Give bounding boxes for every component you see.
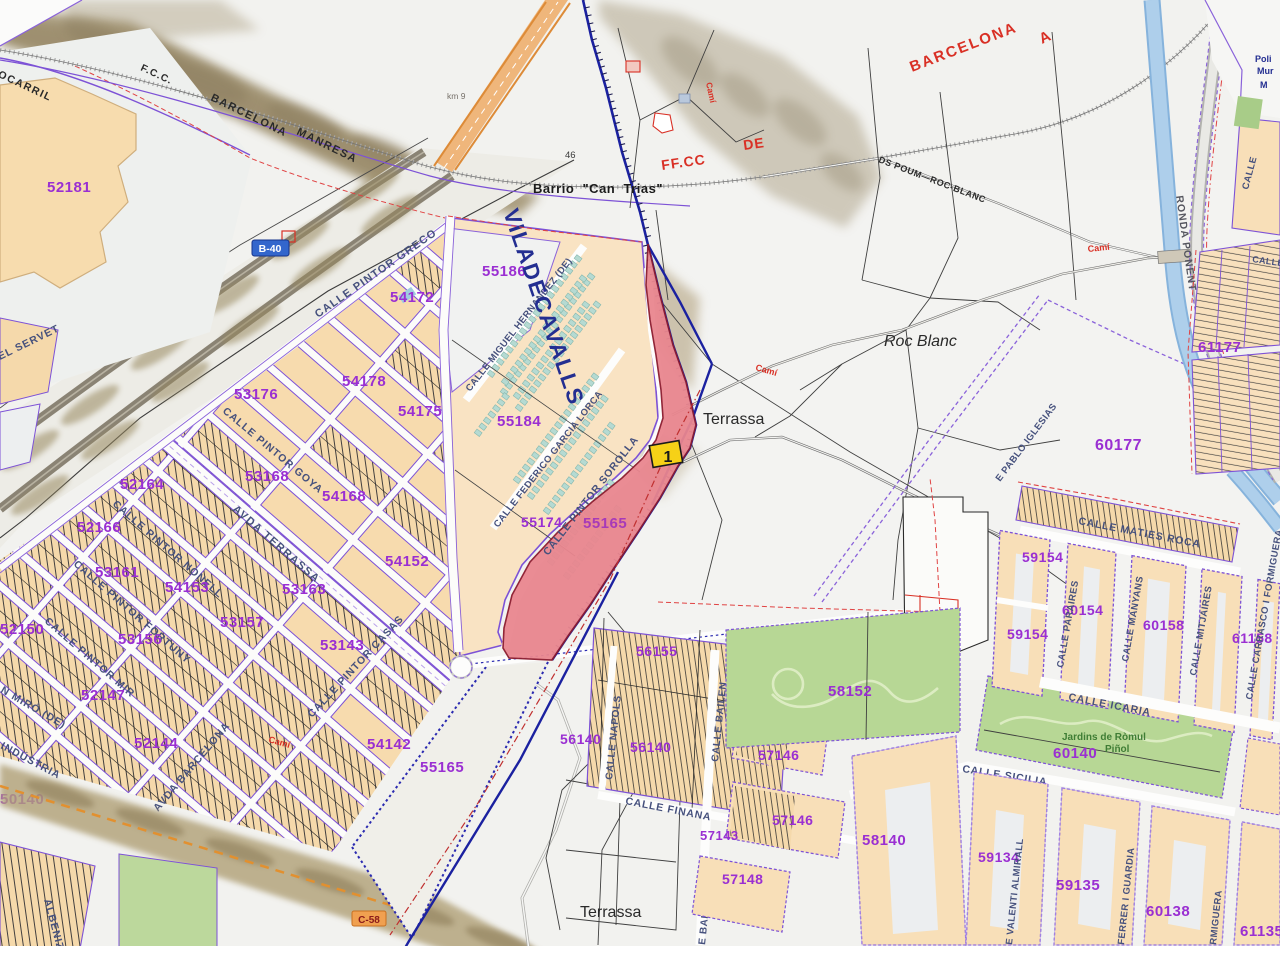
svg-text:53143: 53143: [320, 637, 364, 654]
svg-text:56140: 56140: [630, 739, 671, 755]
svg-text:Roc Blanc: Roc Blanc: [884, 333, 957, 350]
svg-text:56140: 56140: [560, 731, 601, 747]
svg-text:Mur: Mur: [1257, 66, 1274, 76]
svg-text:57143: 57143: [700, 828, 739, 843]
svg-text:54152: 54152: [385, 553, 429, 570]
svg-text:DE: DE: [742, 134, 765, 153]
svg-text:Poli: Poli: [1255, 54, 1272, 64]
svg-text:61177: 61177: [1198, 339, 1241, 356]
svg-text:52166: 52166: [77, 519, 121, 536]
svg-text:60140: 60140: [1053, 745, 1097, 762]
svg-text:60138: 60138: [1146, 903, 1190, 920]
svg-text:55174: 55174: [521, 514, 562, 530]
svg-text:53157: 53157: [220, 614, 264, 631]
svg-text:61135: 61135: [1240, 923, 1280, 940]
svg-text:58152: 58152: [828, 683, 872, 700]
svg-text:58140: 58140: [862, 832, 906, 849]
svg-text:1: 1: [664, 449, 673, 466]
svg-text:59154: 59154: [1022, 549, 1063, 565]
svg-text:57146: 57146: [758, 747, 799, 763]
svg-text:60177: 60177: [1095, 437, 1142, 454]
svg-text:52164: 52164: [120, 476, 164, 493]
svg-text:59135: 59135: [1056, 877, 1100, 894]
svg-text:54153: 54153: [165, 579, 209, 596]
svg-text:54178: 54178: [342, 373, 386, 390]
svg-text:52181: 52181: [47, 179, 91, 196]
svg-text:55184: 55184: [497, 413, 541, 430]
svg-text:B-40: B-40: [259, 243, 282, 255]
svg-text:Jardins de Ròmul: Jardins de Ròmul: [1062, 732, 1146, 743]
svg-text:54142: 54142: [367, 736, 411, 753]
svg-text:M: M: [1260, 80, 1268, 90]
svg-text:59154: 59154: [1007, 626, 1048, 642]
svg-text:60158: 60158: [1143, 617, 1184, 633]
svg-text:52147: 52147: [81, 687, 125, 704]
svg-text:53168: 53168: [245, 468, 289, 485]
svg-text:54172: 54172: [390, 289, 434, 306]
svg-text:57148: 57148: [722, 871, 763, 887]
svg-text:Terrassa: Terrassa: [580, 904, 641, 921]
svg-text:52150: 52150: [0, 621, 44, 638]
svg-text:Piñol: Piñol: [1105, 744, 1130, 755]
svg-text:53176: 53176: [234, 386, 278, 403]
svg-text:Terrassa: Terrassa: [703, 411, 764, 428]
svg-text:C-58: C-58: [358, 915, 380, 926]
svg-text:55165: 55165: [420, 759, 464, 776]
svg-text:52144: 52144: [134, 735, 178, 752]
svg-text:46: 46: [565, 150, 576, 161]
svg-text:55165: 55165: [583, 515, 627, 532]
svg-text:53161: 53161: [95, 564, 139, 581]
svg-text:km 9: km 9: [447, 91, 466, 101]
svg-text:54175: 54175: [398, 403, 442, 420]
svg-text:57146: 57146: [772, 812, 813, 828]
svg-text:54168: 54168: [322, 488, 366, 505]
svg-text:53156: 53156: [118, 631, 162, 648]
svg-text:56155: 56155: [636, 643, 677, 659]
svg-text:Barrio "Can Trias": Barrio "Can Trias": [533, 181, 663, 196]
svg-text:53163: 53163: [282, 581, 326, 598]
